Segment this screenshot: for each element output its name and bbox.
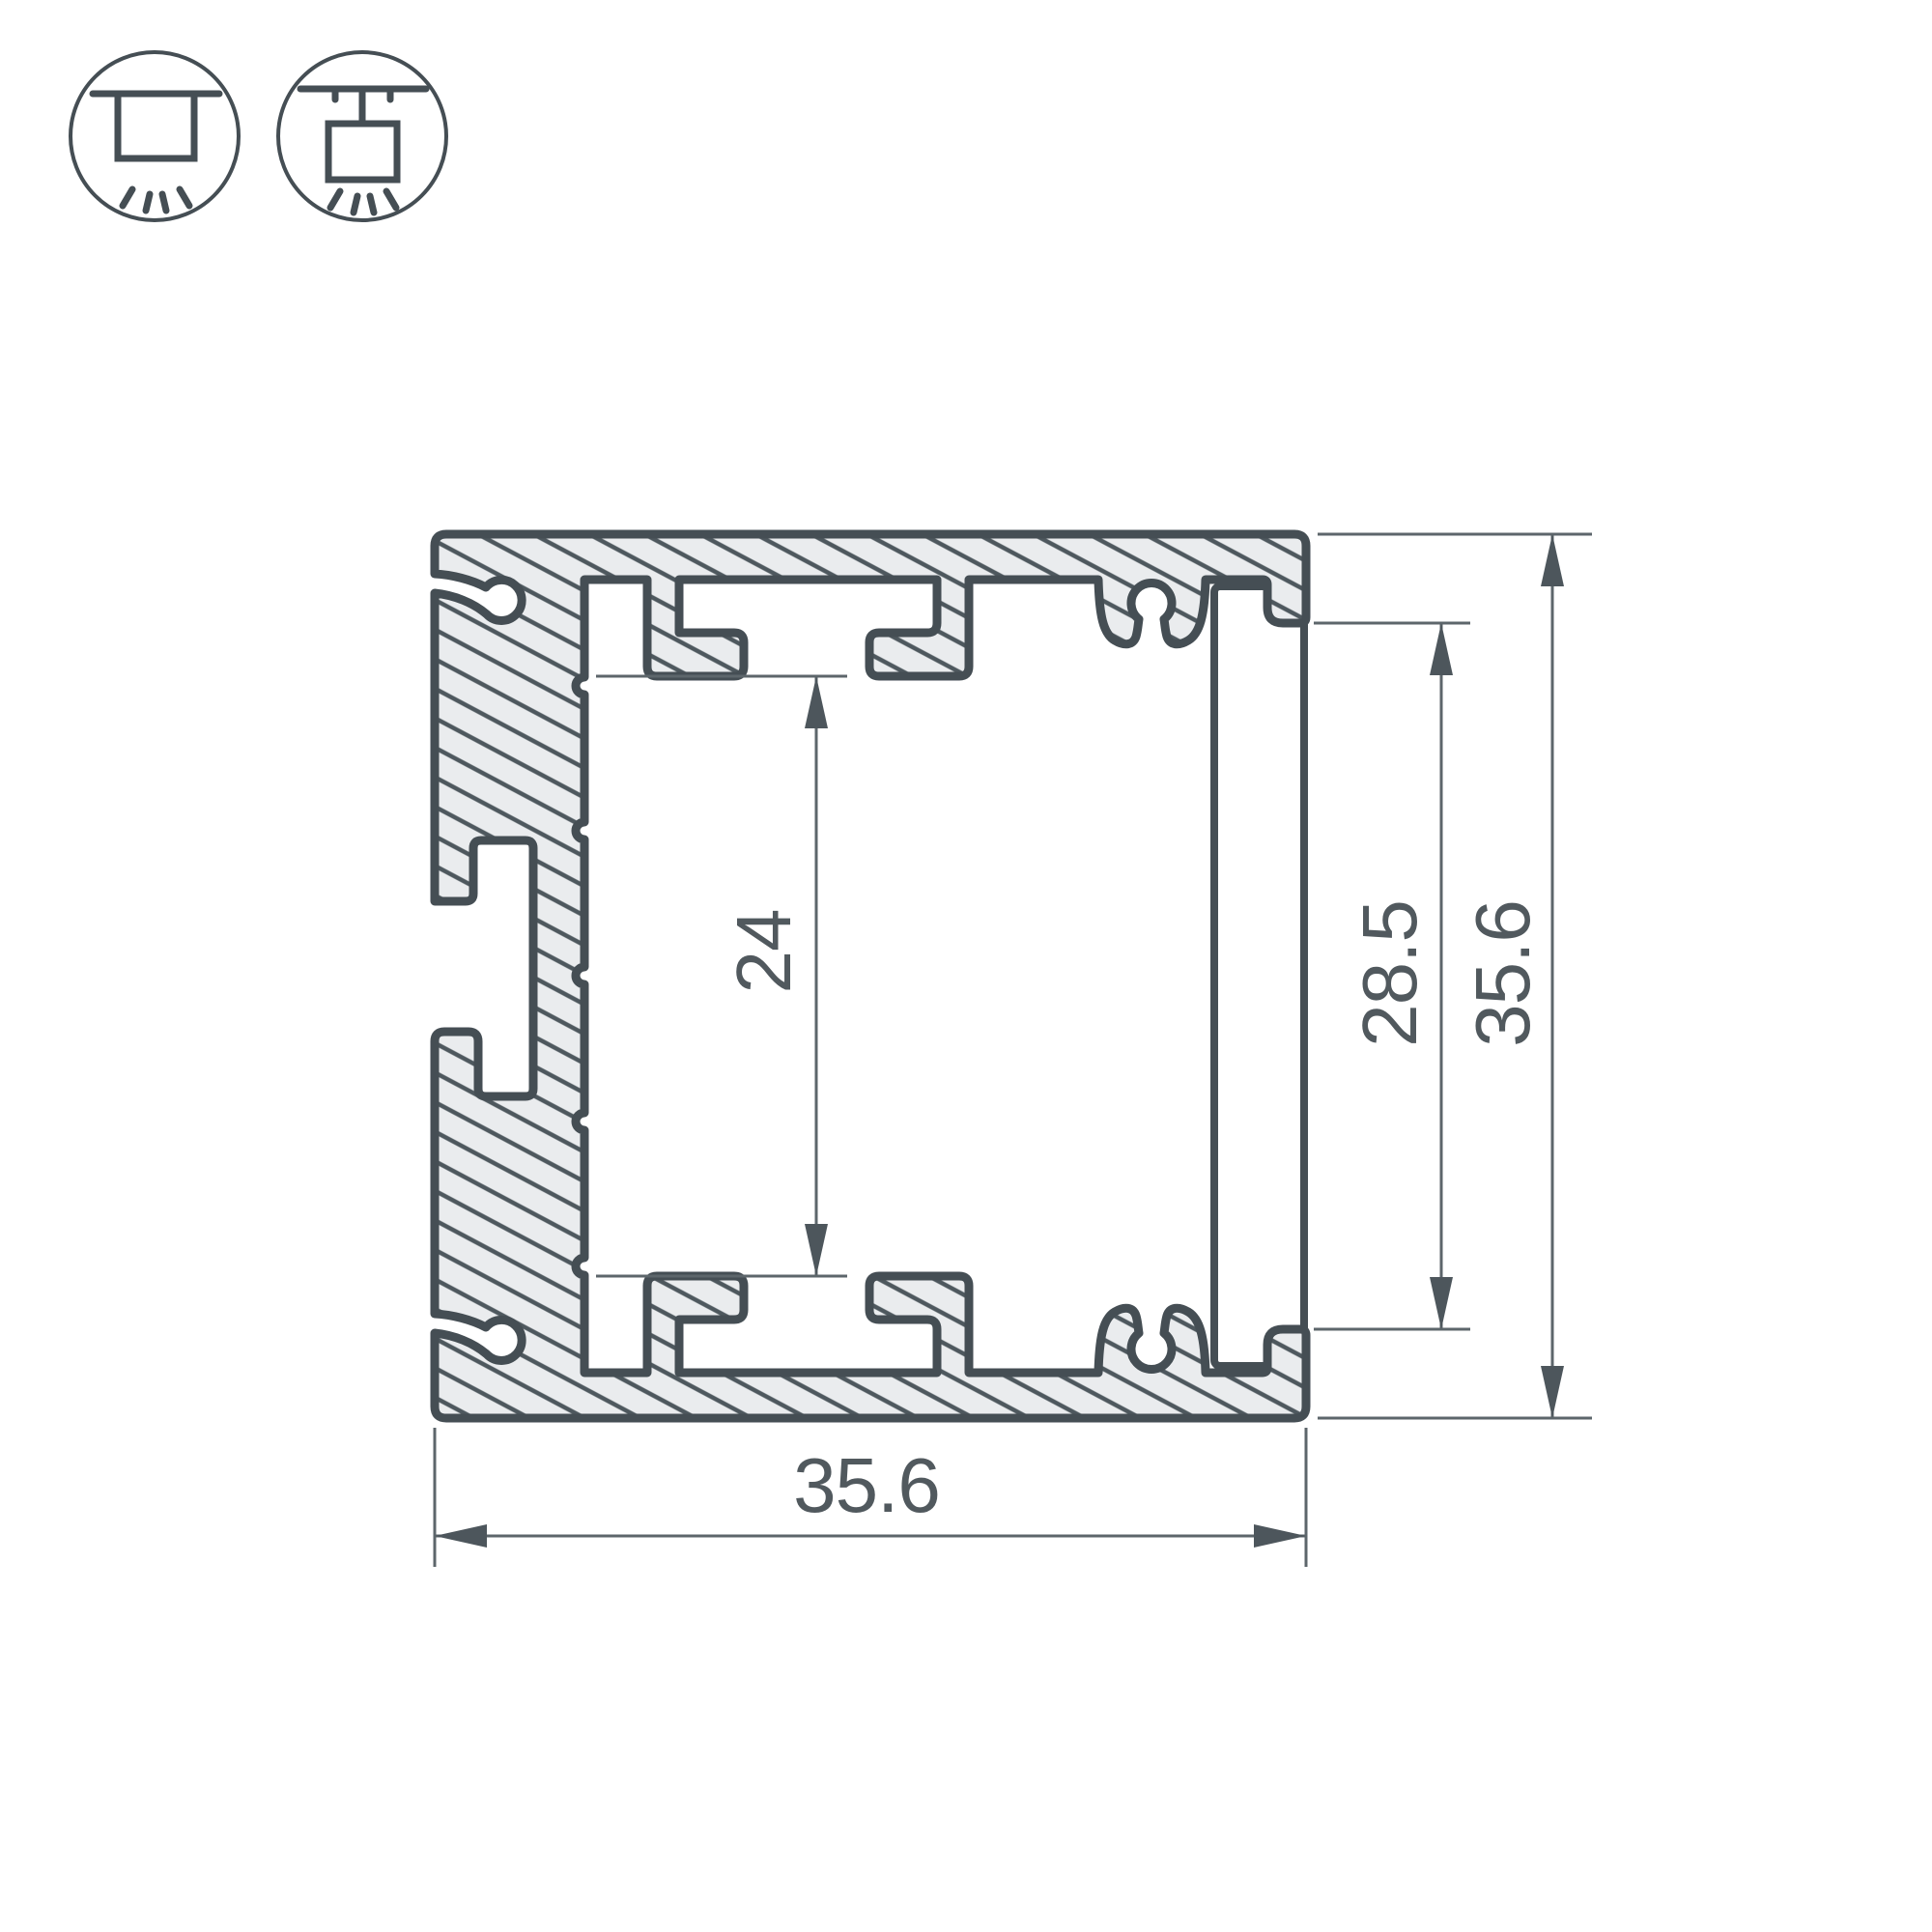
arrowhead-up bbox=[805, 676, 828, 728]
light-rays bbox=[123, 189, 189, 211]
arrowhead-left bbox=[435, 1524, 487, 1548]
icon-circle bbox=[71, 52, 239, 220]
light-rays bbox=[330, 191, 396, 213]
cover-plate bbox=[1214, 586, 1304, 1366]
opening-height-label: 28.5 bbox=[1347, 900, 1433, 1047]
arrowhead-down bbox=[1430, 1277, 1453, 1329]
arrowhead-down bbox=[805, 1224, 828, 1276]
arrowhead-up bbox=[1541, 534, 1564, 586]
icon-circle bbox=[278, 52, 446, 220]
luminaire-box bbox=[118, 94, 194, 158]
arrowhead-down bbox=[1541, 1366, 1564, 1418]
cavity-height-label: 24 bbox=[721, 910, 807, 994]
profile-drawing-canvas: 35.6 28.5 24 35.6 bbox=[0, 0, 1932, 1932]
outer-width-label: 35.6 bbox=[793, 1442, 940, 1528]
luminaire-box bbox=[328, 124, 397, 180]
suspended-luminaire-icon bbox=[278, 52, 446, 220]
arrowhead-up bbox=[1430, 623, 1453, 675]
dimension-labels: 35.6 28.5 24 35.6 bbox=[721, 900, 1546, 1528]
outer-height-label: 35.6 bbox=[1460, 900, 1546, 1047]
surface-mount-luminaire-icon bbox=[71, 52, 239, 220]
arrowhead-right bbox=[1254, 1524, 1306, 1548]
profile-body bbox=[435, 534, 1306, 1418]
